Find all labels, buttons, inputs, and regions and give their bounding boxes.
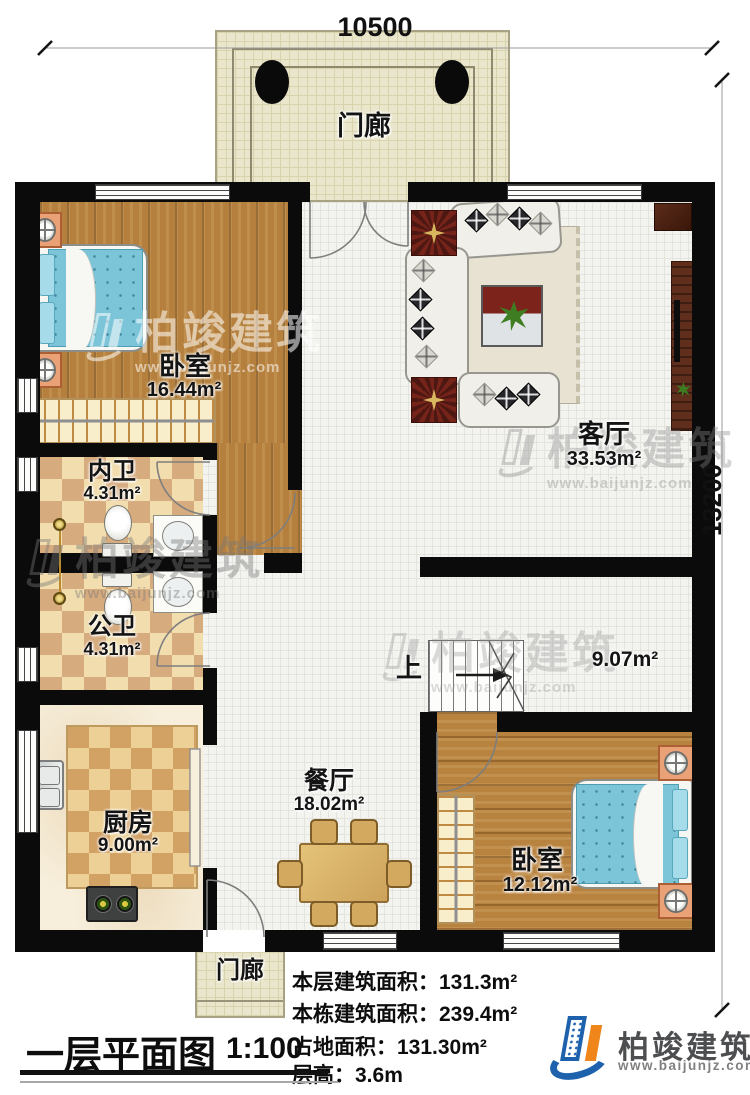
public-bath-area: 4.31m² bbox=[74, 640, 150, 660]
porch-column-icon bbox=[435, 60, 469, 104]
chair bbox=[350, 819, 378, 845]
toilet-icon bbox=[102, 505, 134, 559]
plant-icon bbox=[499, 301, 529, 331]
sink-basin bbox=[162, 521, 194, 551]
sink-icon bbox=[153, 571, 203, 613]
stairs bbox=[428, 640, 524, 712]
wall-segment bbox=[264, 553, 302, 573]
stair-hall-area: 9.07m² bbox=[582, 648, 668, 671]
top-porch-label: 门廊 bbox=[327, 112, 401, 142]
chair bbox=[386, 860, 412, 888]
towel-rail-knob bbox=[53, 518, 66, 531]
nightstand bbox=[658, 883, 694, 919]
window bbox=[17, 378, 38, 413]
public-bath-label: 公卫 bbox=[80, 614, 144, 640]
bedroom2-area: 12.12m² bbox=[494, 874, 586, 896]
toilet-bowl bbox=[104, 505, 132, 541]
dimension-right: 13200 bbox=[697, 450, 727, 550]
bottom-porch-label: 门廊 bbox=[209, 958, 271, 984]
kitchen-label: 厨房 bbox=[96, 810, 160, 838]
nightstand bbox=[658, 745, 694, 781]
kitchen-tile-rug bbox=[66, 725, 198, 889]
wardrobe bbox=[30, 398, 216, 444]
stove-icon bbox=[86, 886, 138, 922]
bottom-porch-step-line bbox=[197, 1000, 283, 1002]
dining-area: 18.02m² bbox=[284, 795, 374, 816]
info-building-area: 本栋建筑面积：239.4m² bbox=[292, 998, 517, 1028]
wall-segment bbox=[203, 668, 217, 690]
chair bbox=[350, 901, 378, 927]
wall-segment bbox=[15, 690, 217, 705]
sink-basin bbox=[39, 788, 60, 807]
company-logo-icon bbox=[552, 1014, 614, 1080]
bed bbox=[571, 779, 693, 889]
porch-column-icon bbox=[255, 60, 289, 104]
compass-star-icon bbox=[423, 389, 445, 411]
wall-segment bbox=[288, 202, 302, 490]
dining-table bbox=[299, 843, 389, 903]
inner-bath-label: 内卫 bbox=[80, 459, 144, 485]
towel-rail-icon bbox=[54, 524, 66, 600]
compass-star-icon bbox=[423, 222, 445, 244]
window bbox=[17, 647, 38, 682]
toilet-tank bbox=[102, 573, 132, 587]
window bbox=[503, 932, 620, 950]
coffee-table bbox=[481, 285, 543, 347]
wall-segment bbox=[15, 930, 203, 952]
scale-label: 1:100 bbox=[226, 1032, 303, 1066]
dining-label: 餐厅 bbox=[296, 768, 362, 796]
end-table bbox=[411, 210, 457, 256]
info-floor-area: 本层建筑面积：131.3m² bbox=[292, 966, 517, 996]
kitchen-area: 9.00m² bbox=[88, 836, 168, 857]
pillow bbox=[39, 254, 55, 296]
bed-sheet-fold bbox=[633, 784, 663, 886]
wall-segment bbox=[420, 712, 437, 732]
wall-segment bbox=[497, 712, 692, 732]
lamp-icon bbox=[664, 751, 688, 775]
window bbox=[17, 730, 38, 833]
dimension-top: 10500 bbox=[325, 12, 425, 43]
title-underline-thin bbox=[20, 1081, 338, 1083]
lamp-icon bbox=[664, 889, 688, 913]
mattress bbox=[576, 784, 679, 884]
pillow bbox=[39, 302, 55, 344]
wall-segment bbox=[203, 868, 217, 930]
stair-up-label: 上 bbox=[392, 654, 426, 683]
cabinet bbox=[654, 203, 692, 231]
sink-basin bbox=[162, 577, 194, 607]
wall-segment bbox=[15, 443, 217, 457]
wall-segment bbox=[203, 515, 217, 613]
wardrobe bbox=[437, 794, 475, 924]
bedroom1-label: 卧室 bbox=[142, 352, 228, 381]
floor-plan: 门廊 门廊 bbox=[0, 0, 750, 1095]
burner bbox=[94, 895, 112, 913]
toilet-tank bbox=[102, 543, 132, 557]
title-underline bbox=[20, 1070, 328, 1075]
window bbox=[323, 932, 397, 950]
burner bbox=[116, 895, 134, 913]
info-land-area: 占地面积：131.30m² bbox=[292, 1031, 487, 1061]
living-label: 客厅 bbox=[570, 420, 638, 449]
wall-segment bbox=[692, 202, 715, 930]
towel-rail-knob bbox=[53, 592, 66, 605]
chair bbox=[310, 819, 338, 845]
wall-segment bbox=[420, 557, 692, 577]
end-table bbox=[411, 377, 457, 423]
wall-segment bbox=[203, 690, 217, 745]
plant-icon bbox=[676, 382, 691, 397]
window bbox=[95, 184, 230, 200]
bedroom2-label: 卧室 bbox=[502, 846, 572, 875]
window bbox=[17, 457, 38, 492]
pillow bbox=[672, 789, 688, 831]
window bbox=[507, 184, 642, 200]
company-website: www.baijunjz.com bbox=[618, 1058, 750, 1073]
chair bbox=[277, 860, 303, 888]
tv-icon bbox=[674, 300, 680, 362]
wall-segment bbox=[420, 732, 437, 930]
chair bbox=[310, 901, 338, 927]
sink-basin bbox=[39, 766, 60, 785]
bedroom1-area: 16.44m² bbox=[134, 379, 234, 401]
living-area: 33.53m² bbox=[558, 448, 650, 470]
sink-icon bbox=[153, 515, 203, 557]
inner-bath-area: 4.31m² bbox=[74, 484, 150, 504]
bed bbox=[34, 244, 148, 352]
pillow bbox=[672, 837, 688, 879]
